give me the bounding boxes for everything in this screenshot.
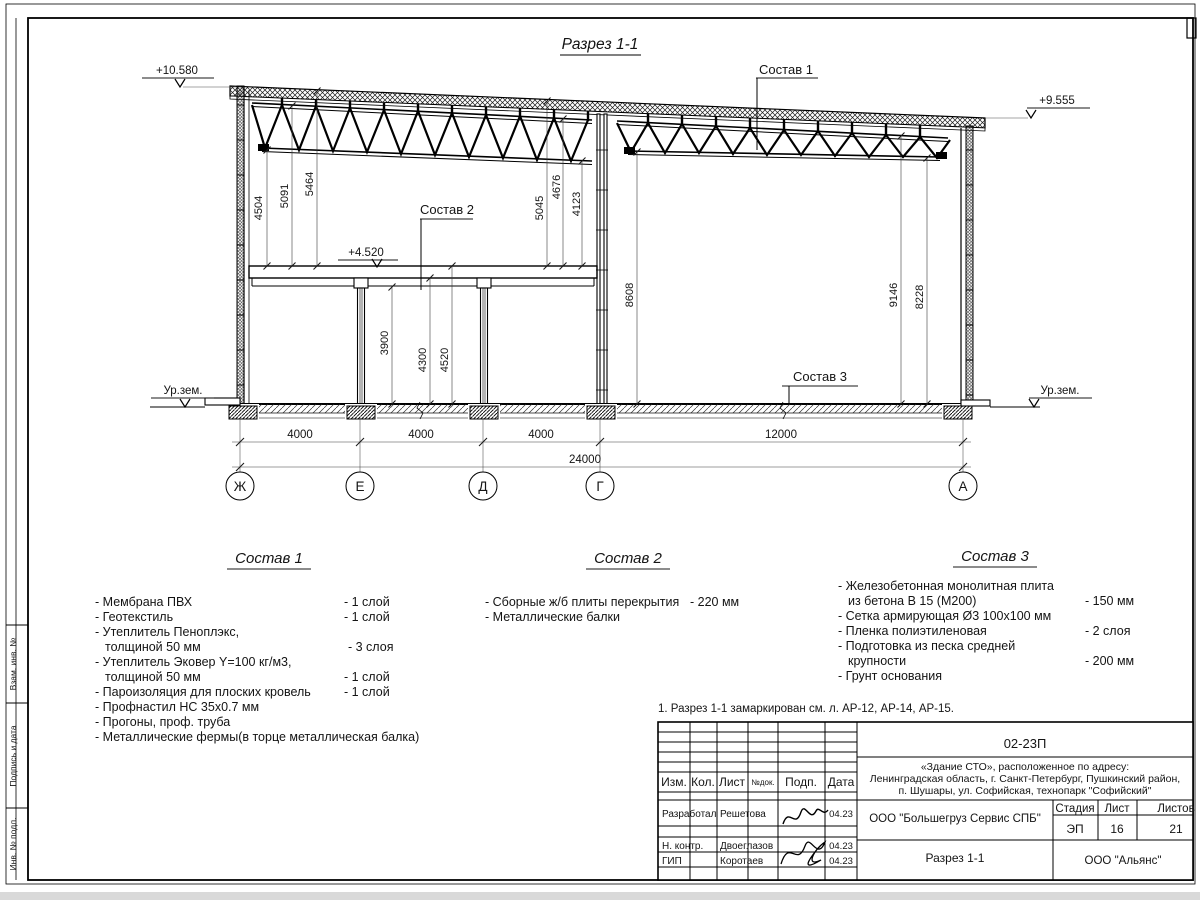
callout-sostav3: Состав 3 (782, 369, 858, 403)
list-item: толщиной 50 мм (105, 670, 201, 684)
dim-8228: 8228 (914, 155, 931, 408)
axis-bubble-d: Д (469, 472, 497, 500)
dim-text: 4504 (253, 196, 265, 220)
dim-text: 4520 (439, 348, 451, 372)
date-developer: 04.23 (829, 809, 853, 820)
list-item: - Геотекстиль (95, 610, 173, 624)
frame-label-podpis: Подпись и дата (8, 725, 18, 786)
interior-column-d (477, 278, 491, 404)
axis-bubble-e: Е (346, 472, 374, 500)
list-item-qty: - 1 слой (344, 685, 390, 699)
sheet-title: Разрез 1-1 (926, 851, 985, 865)
col-kol: Кол. (691, 775, 715, 789)
dim-4300: 4300 (417, 275, 434, 408)
elevation-value: +10.580 (156, 65, 198, 77)
axis-letter: Д (478, 479, 487, 494)
list-heading: Состав 2 (594, 550, 662, 567)
dim-text: 4123 (571, 192, 583, 216)
composition-lists: Состав 1 - Мембрана ПВХ - 1 слой - Геоте… (95, 548, 1134, 744)
axis-letter: Е (355, 479, 364, 494)
section-drawing-canvas: Взам. инв. № Подпись и дата Инв. № подл.… (0, 0, 1200, 900)
list-item-qty: - 220 мм (690, 595, 739, 609)
list-item-qty: - 200 мм (1085, 654, 1134, 668)
list-heading: Состав 3 (961, 548, 1029, 565)
drawing-note: 1. Разрез 1-1 замаркирован см. л. АР-12,… (658, 703, 954, 715)
dim-text: 4300 (417, 348, 429, 372)
dim-5091: 5091 (279, 103, 296, 270)
list-item: - Сборные ж/б плиты перекрытия (485, 595, 679, 609)
list-item-qty: - 3 слоя (348, 640, 393, 654)
project-code: 02-23П (1004, 736, 1047, 751)
ground-level-label: Ур.зем. (1040, 385, 1079, 397)
list-heading: Состав 1 (235, 550, 303, 567)
axis-bubble-a: А (949, 472, 977, 500)
sheets-value: 21 (1169, 822, 1183, 836)
dim-5045: 5045 (534, 98, 551, 270)
list-item: - Грунт основания (838, 669, 942, 683)
axis-bubble-zh: Ж (226, 472, 254, 500)
object-line1: «Здание СТО», расположенное по адресу: (921, 761, 1129, 773)
list-item: - Сетка армирующая Ø3 100х100 мм (838, 609, 1051, 623)
callout-label: Состав 3 (793, 369, 847, 384)
list-item: - Металлические фермы(в торце металличес… (95, 730, 419, 744)
dim-text: 8608 (624, 283, 636, 307)
dim-4123: 4123 (571, 158, 586, 270)
list-item: крупности (848, 654, 906, 668)
mezzanine-slab (249, 266, 597, 286)
object-line2: Ленинградская область, г. Санкт-Петербур… (870, 773, 1180, 785)
sheet-value: 16 (1110, 822, 1124, 836)
col-list: Лист (719, 775, 746, 789)
date-ncontrol: 04.23 (829, 841, 853, 852)
interior-column-e (354, 278, 368, 404)
col-izm: Изм. (661, 775, 687, 789)
name-ncontrol: Двоеглазов (720, 841, 773, 852)
dim-text: 9146 (888, 283, 900, 307)
list-item: - Утеплитель Пеноплэкс, (95, 625, 239, 639)
callout-label: Состав 2 (420, 202, 474, 217)
dim-text: 5091 (279, 184, 291, 208)
title-block: Изм. Кол. Лист №док. Подп. Дата Разработ… (658, 722, 1195, 880)
list-item-qty: - 2 слоя (1085, 624, 1130, 638)
dim-4676: 4676 (551, 116, 567, 270)
middle-column (596, 114, 608, 404)
elevation-value: +4.520 (348, 247, 384, 259)
sheets-label: Листов (1157, 803, 1194, 815)
client-org: ООО "Большегруз Сервис СПБ" (869, 813, 1041, 825)
callout-label: Состав 1 (759, 62, 813, 77)
ground-level-right: Ур.зем. (1029, 385, 1092, 407)
dim-4520: 4520 (439, 263, 456, 408)
list-item: - Пленка полиэтиленовая (838, 624, 987, 638)
date-gip: 04.23 (829, 856, 853, 867)
list-item: - Мембрана ПВХ (95, 595, 193, 609)
list-item: - Профнастил НС 35х0.7 мм (95, 700, 259, 714)
list-item: - Прогоны, проф. труба (95, 715, 230, 729)
list-item-qty: - 1 слой (344, 595, 390, 609)
list-item: - Железобетонная монолитная плита (838, 579, 1054, 593)
list-item-qty: - 150 мм (1085, 594, 1134, 608)
name-developer: Решетова (720, 809, 766, 820)
dim-text: 4000 (287, 429, 313, 441)
dim-8608: 8608 (624, 149, 641, 408)
stage-value: ЭП (1066, 822, 1083, 836)
role-developer: Разработал (662, 808, 717, 820)
elevation-value: +9.555 (1039, 95, 1075, 107)
ground-level-label: Ур.зем. (163, 385, 202, 397)
elevation-roof-left: +10.580 (142, 65, 236, 87)
sostav3-list: Состав 3 - Железобетонная монолитная пли… (838, 548, 1134, 683)
role-gip: ГИП (662, 856, 682, 867)
ground-floor-slab (150, 398, 1040, 420)
list-item: толщиной 50 мм (105, 640, 201, 654)
sheet-label: Лист (1105, 803, 1131, 815)
dim-text: 4000 (408, 429, 434, 441)
list-item: - Подготовка из песка средней (838, 639, 1015, 653)
sostav2-list: Состав 2 - Сборные ж/б плиты перекрытия … (485, 550, 739, 624)
drawing-sheet: Взам. инв. № Подпись и дата Инв. № подл.… (0, 0, 1200, 900)
object-line3: п. Шушары, ул. Софийская, технопарк "Соф… (899, 785, 1152, 797)
view-title: Разрез 1-1 (560, 36, 641, 55)
role-ncontrol: Н. контр. (662, 841, 703, 852)
dim-text: 4000 (528, 429, 554, 441)
dim-text: 8228 (914, 285, 926, 309)
dim-3900: 3900 (379, 284, 396, 408)
axis-letter: А (958, 479, 967, 494)
axis-letter: Ж (234, 479, 247, 494)
frame-label-vzam: Взам. инв. № (8, 638, 18, 691)
frame-label-inv: Инв. № подл. (8, 818, 18, 871)
elevation-mezzanine: +4.520 (338, 247, 398, 267)
col-data: Дата (828, 775, 855, 789)
elevation-roof-right: +9.555 (985, 95, 1090, 118)
dim-text: 12000 (765, 429, 797, 441)
list-item-qty: - 1 слой (344, 610, 390, 624)
view-title-text: Разрез 1-1 (562, 36, 639, 53)
section-structure (150, 86, 1040, 420)
list-item: из бетона В 15 (М200) (848, 594, 976, 608)
dim-text: 5464 (304, 172, 316, 196)
list-item-qty: - 1 слой (344, 670, 390, 684)
stage-label: Стадия (1055, 803, 1094, 815)
col-ndok: №док. (751, 778, 774, 787)
designer-org: ООО "Альянс" (1085, 855, 1162, 867)
list-item: - Утеплитель Эковер Y=100 кг/м3, (95, 655, 291, 669)
left-wall (237, 86, 249, 404)
col-podp: Подп. (785, 775, 817, 789)
name-gip: Коротаев (720, 856, 763, 867)
dim-text: 24000 (569, 454, 601, 466)
bottom-dimensions: 4000 4000 4000 12000 24000 (232, 418, 971, 472)
list-item: - Металлические балки (485, 610, 620, 624)
right-wall (961, 126, 973, 404)
dim-text: 4676 (551, 175, 563, 199)
axis-bubbles: Ж Е Д Г А (226, 472, 977, 500)
axis-bubble-g: Г (586, 472, 614, 500)
axis-letter: Г (596, 479, 604, 494)
sostav1-list: Состав 1 - Мембрана ПВХ - 1 слой - Геоте… (95, 550, 419, 744)
dim-text: 5045 (534, 196, 546, 220)
callout-sostav1: Состав 1 (756, 62, 818, 150)
list-item: - Пароизоляция для плоских кровель (95, 685, 311, 699)
dim-text: 3900 (379, 331, 391, 355)
dim-9146: 9146 (888, 133, 905, 408)
dim-4504: 4504 (253, 147, 271, 270)
